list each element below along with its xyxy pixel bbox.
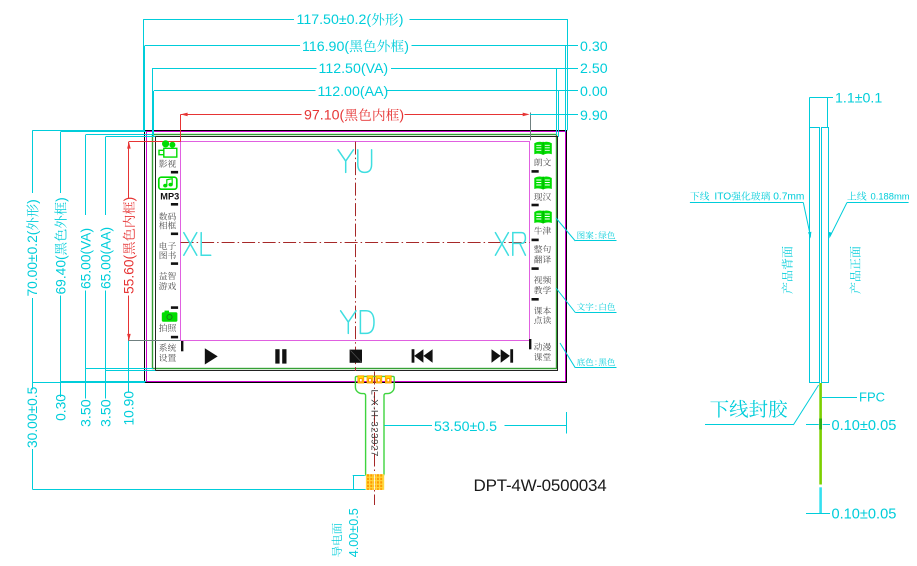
svg-text:): ) bbox=[404, 39, 409, 55]
svg-text:65.00(AA): 65.00(AA) bbox=[98, 227, 113, 289]
svg-text:): ) bbox=[122, 197, 137, 202]
svg-text:53.50±0.5: 53.50±0.5 bbox=[434, 419, 497, 435]
svg-text:0.188mm: 0.188mm bbox=[871, 191, 910, 202]
svg-text:117.50±0.2(: 117.50±0.2( bbox=[297, 12, 372, 28]
svg-text:1.1±0.1: 1.1±0.1 bbox=[835, 91, 882, 107]
svg-text:70.00±0.2(: 70.00±0.2( bbox=[25, 230, 40, 296]
svg-text:0.00: 0.00 bbox=[580, 84, 608, 100]
svg-text:116.90(: 116.90( bbox=[302, 39, 349, 55]
svg-text:3.50: 3.50 bbox=[79, 399, 95, 427]
svg-text:69.40(: 69.40( bbox=[53, 255, 68, 295]
svg-text:10.90: 10.90 bbox=[122, 391, 137, 426]
svg-text::: : bbox=[595, 230, 597, 240]
svg-text:0.30: 0.30 bbox=[53, 394, 68, 421]
svg-text:3.50: 3.50 bbox=[99, 399, 115, 427]
svg-text:): ) bbox=[399, 108, 404, 124]
svg-text:MP3: MP3 bbox=[160, 191, 179, 201]
svg-text:97.10(: 97.10( bbox=[304, 108, 345, 124]
svg-text:55.60(: 55.60( bbox=[122, 254, 137, 294]
svg-text:2.50: 2.50 bbox=[580, 61, 608, 77]
svg-text:0.10±0.05: 0.10±0.05 bbox=[832, 418, 897, 434]
svg-text:): ) bbox=[399, 12, 404, 28]
svg-text:9.90: 9.90 bbox=[580, 108, 608, 124]
svg-text:L-X-H-323927: L-X-H-323927 bbox=[368, 390, 379, 457]
svg-text:112.50(VA): 112.50(VA) bbox=[319, 61, 389, 77]
svg-text:0.7mm: 0.7mm bbox=[770, 192, 804, 203]
svg-text:30.00±0.5: 30.00±0.5 bbox=[25, 386, 40, 448]
svg-text:FPC: FPC bbox=[859, 390, 885, 405]
svg-text:112.00(AA): 112.00(AA) bbox=[318, 84, 389, 100]
svg-text:DPT-4W-0500034: DPT-4W-0500034 bbox=[474, 476, 607, 495]
svg-text:): ) bbox=[25, 199, 40, 204]
svg-text:0.30: 0.30 bbox=[580, 39, 608, 55]
svg-text::: : bbox=[595, 357, 597, 367]
svg-text:0.10±0.05: 0.10±0.05 bbox=[832, 507, 897, 523]
svg-text:): ) bbox=[53, 197, 68, 202]
svg-text:ITO: ITO bbox=[714, 192, 731, 203]
svg-text:65.00(VA): 65.00(VA) bbox=[78, 228, 93, 289]
svg-text::: : bbox=[595, 302, 597, 312]
svg-text:4.00±0.5: 4.00±0.5 bbox=[347, 508, 361, 557]
